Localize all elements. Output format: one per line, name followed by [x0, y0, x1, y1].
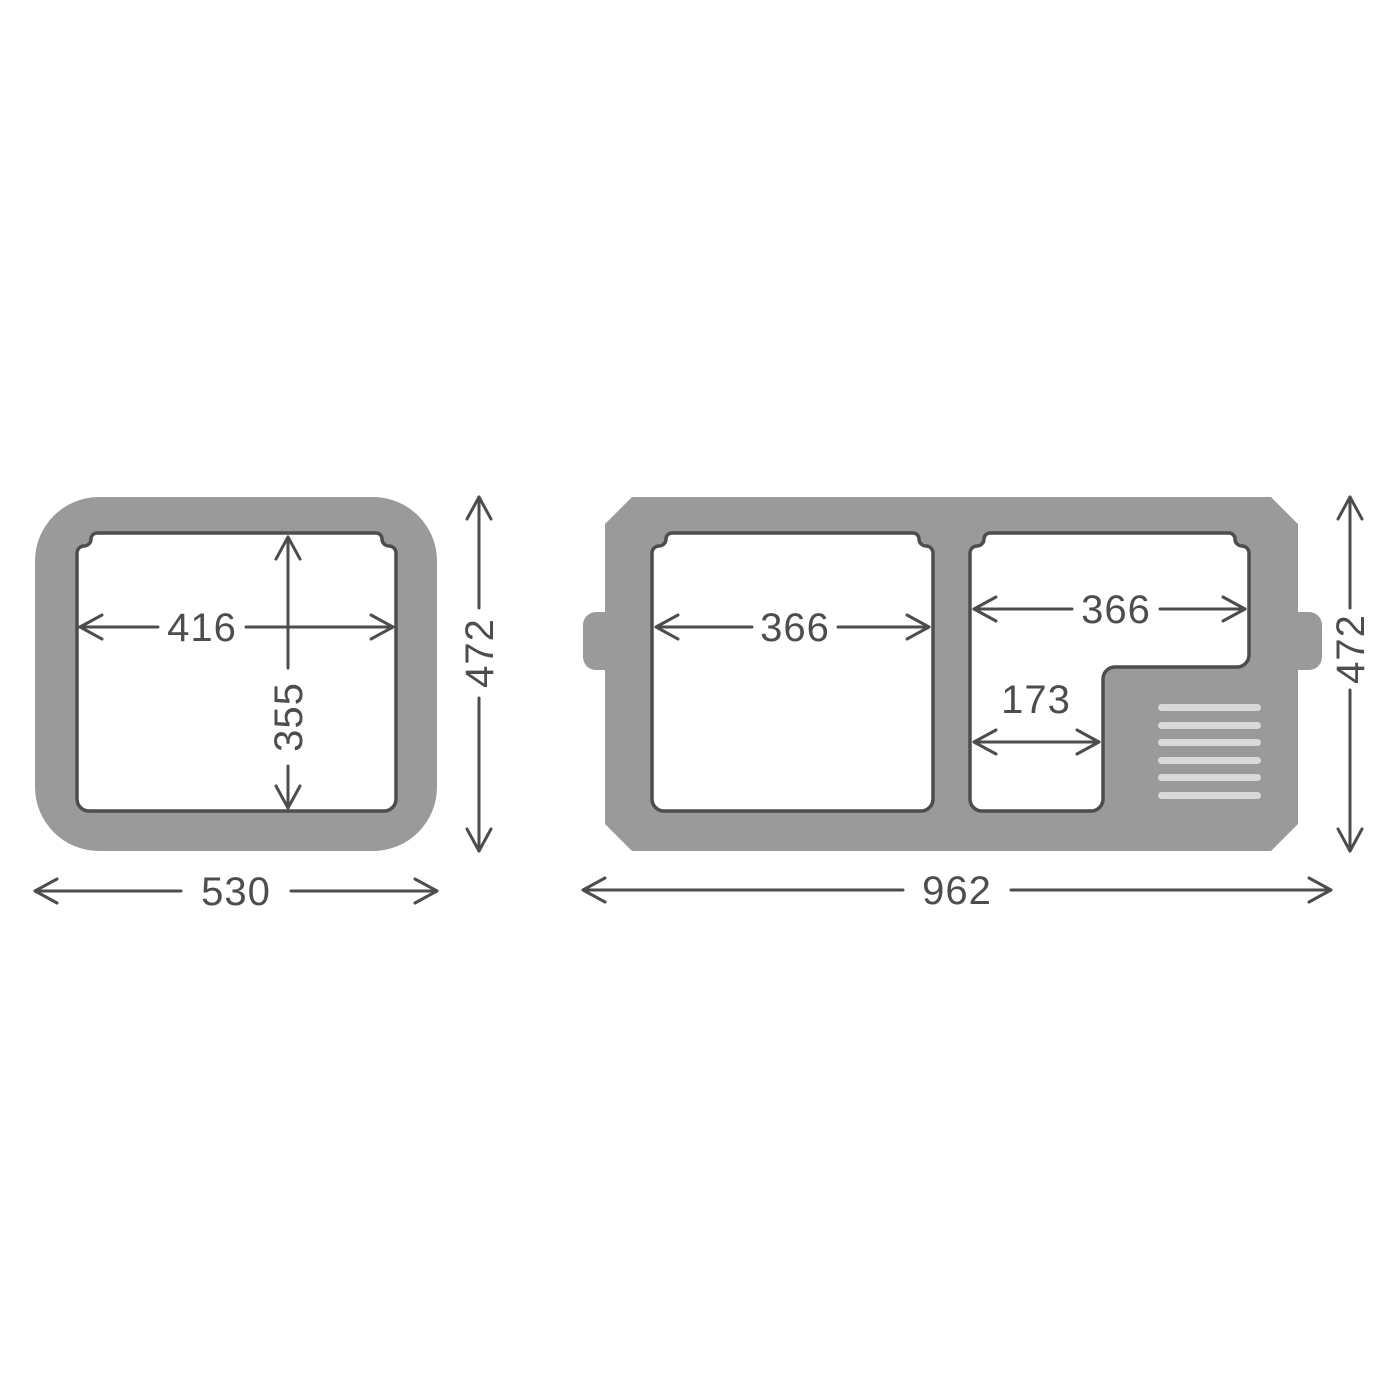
right-view: 366 366 173 472 962	[583, 497, 1373, 913]
dim-label-outer-depth: 472	[458, 618, 502, 688]
dimension-diagram-page: 416 355 472 530	[0, 0, 1400, 1400]
vent-slot-line	[1158, 704, 1261, 711]
vent-slot-line	[1158, 722, 1261, 729]
dim-left-outer-width: 530	[35, 870, 437, 914]
right-view-left-compartment	[652, 533, 933, 811]
dim-label-outer-width: 962	[922, 869, 992, 913]
dim-label-outer-width: 530	[201, 870, 271, 914]
dim-label-right-compartment-width: 366	[1081, 588, 1151, 632]
dim-label-outer-depth: 472	[1329, 614, 1373, 684]
vent-slot-line	[1158, 739, 1261, 746]
dim-label-inner-depth: 355	[267, 682, 311, 752]
left-view-compartment	[77, 533, 396, 811]
dim-label-left-compartment-width: 366	[760, 606, 830, 650]
dim-right-outer-width: 962	[583, 869, 1331, 913]
vent-slot-line	[1158, 792, 1261, 799]
vent-slot-line	[1158, 757, 1261, 764]
vent-slot-line	[1158, 774, 1261, 781]
dim-left-outer-depth: 472	[458, 497, 502, 851]
dimension-diagram: 416 355 472 530	[0, 0, 1400, 1400]
left-view: 416 355 472 530	[35, 497, 502, 914]
dim-label-inner-width: 416	[167, 606, 237, 650]
dim-right-outer-depth: 472	[1329, 497, 1373, 851]
dim-label-lower-leg-width: 173	[1001, 678, 1071, 722]
